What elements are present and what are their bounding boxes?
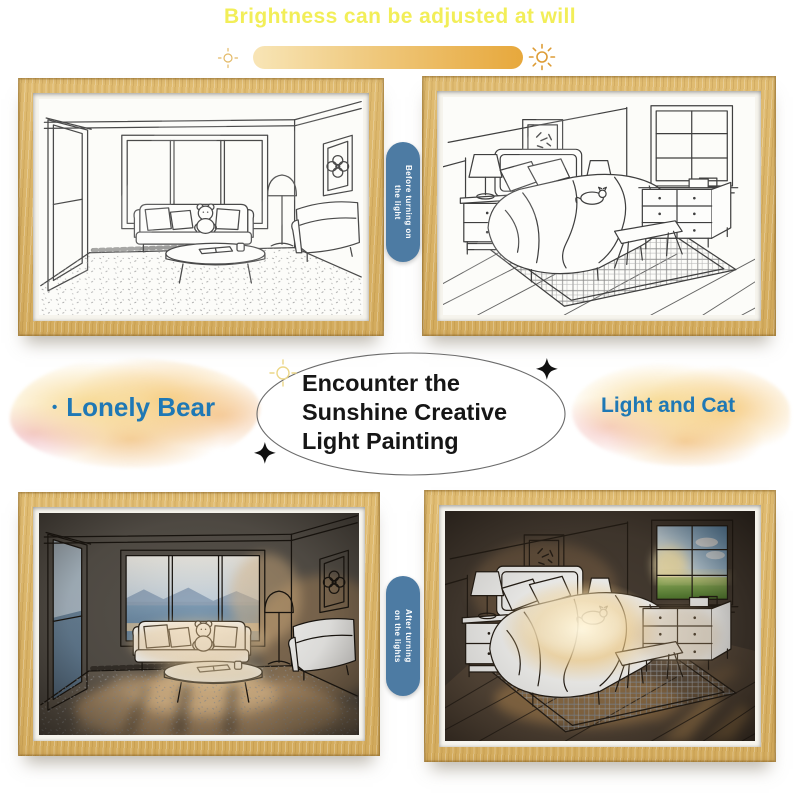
after-light-ribbon: After turning on the lights (386, 576, 420, 696)
ribbon-line: the light (392, 185, 403, 220)
page-title: Brightness can be adjusted at will (0, 5, 800, 29)
before-light-ribbon: Before turning on the light (386, 142, 420, 262)
product-name: Light and Cat (601, 394, 735, 418)
photo-frame-living-room-sketch (18, 78, 384, 336)
living-room-sketch-art (39, 99, 363, 315)
bedroom-sketch-art (443, 97, 755, 315)
main-heading: Encounter the Sunshine Creative Light Pa… (302, 369, 507, 456)
heading-line-2: Sunshine Creative (302, 398, 507, 427)
ribbon-line: After turning (403, 609, 414, 663)
product-label-light-and-cat: Light and Cat (601, 394, 735, 418)
photo-frame-bedroom-lit (424, 490, 776, 762)
living-room-lit-art (39, 513, 359, 735)
promo-poster: Brightness can be adjusted at will (0, 0, 800, 800)
ribbon-line: Before turning on (403, 165, 414, 239)
sun-doodle-icon (268, 358, 298, 388)
heading-line-1: Encounter the (302, 369, 507, 398)
product-name: Lonely Bear (66, 392, 215, 423)
brightness-slider[interactable] (253, 46, 523, 69)
bedroom-lit-art (445, 511, 755, 741)
sparkle-star-icon (536, 358, 558, 380)
bright-sun-icon (528, 43, 556, 71)
frame-mat (439, 505, 761, 747)
product-label-lonely-bear: • Lonely Bear (52, 392, 215, 423)
frame-mat (437, 91, 761, 321)
dim-sun-icon (217, 47, 239, 69)
photo-frame-bedroom-sketch (422, 76, 776, 336)
frame-mat (33, 93, 369, 321)
bullet-dot: • (52, 399, 57, 416)
photo-frame-living-room-lit (18, 492, 380, 756)
heading-line-3: Light Painting (302, 427, 507, 456)
frame-mat (33, 507, 365, 741)
sparkle-star-icon (254, 442, 276, 464)
ribbon-line: on the lights (392, 610, 403, 663)
